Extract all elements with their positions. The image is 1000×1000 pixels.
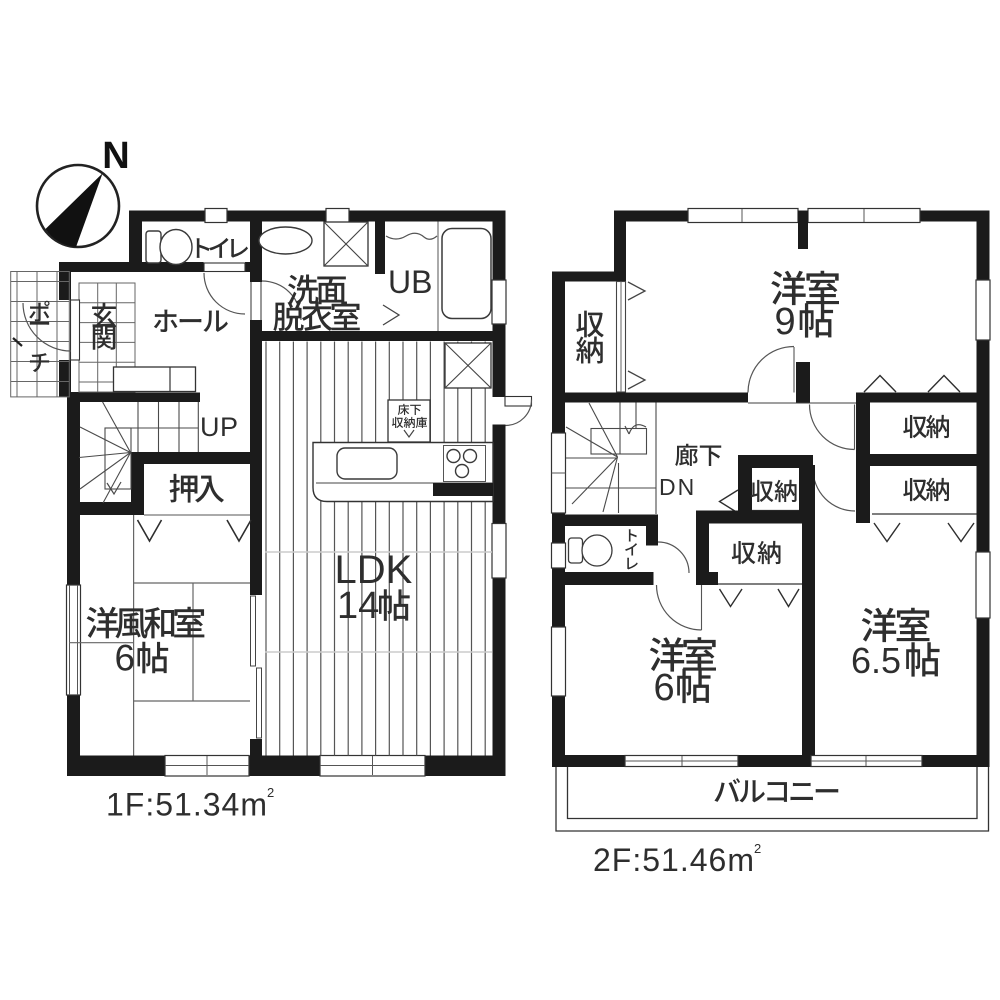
svg-text:DN: DN — [659, 474, 696, 500]
svg-text:UB: UB — [388, 264, 432, 300]
svg-text:6: 6 — [115, 638, 136, 679]
svg-text:2F:51.46m: 2F:51.46m — [593, 842, 755, 878]
svg-text:2: 2 — [754, 841, 761, 856]
svg-text:1F:51.34m: 1F:51.34m — [106, 787, 268, 823]
svg-text:14: 14 — [337, 585, 379, 627]
svg-text:UP: UP — [200, 412, 239, 442]
svg-text:6: 6 — [654, 667, 675, 709]
svg-text:9: 9 — [775, 301, 796, 343]
svg-text:6.5: 6.5 — [851, 640, 901, 681]
svg-text:N: N — [102, 135, 129, 177]
svg-text:2: 2 — [267, 785, 274, 800]
